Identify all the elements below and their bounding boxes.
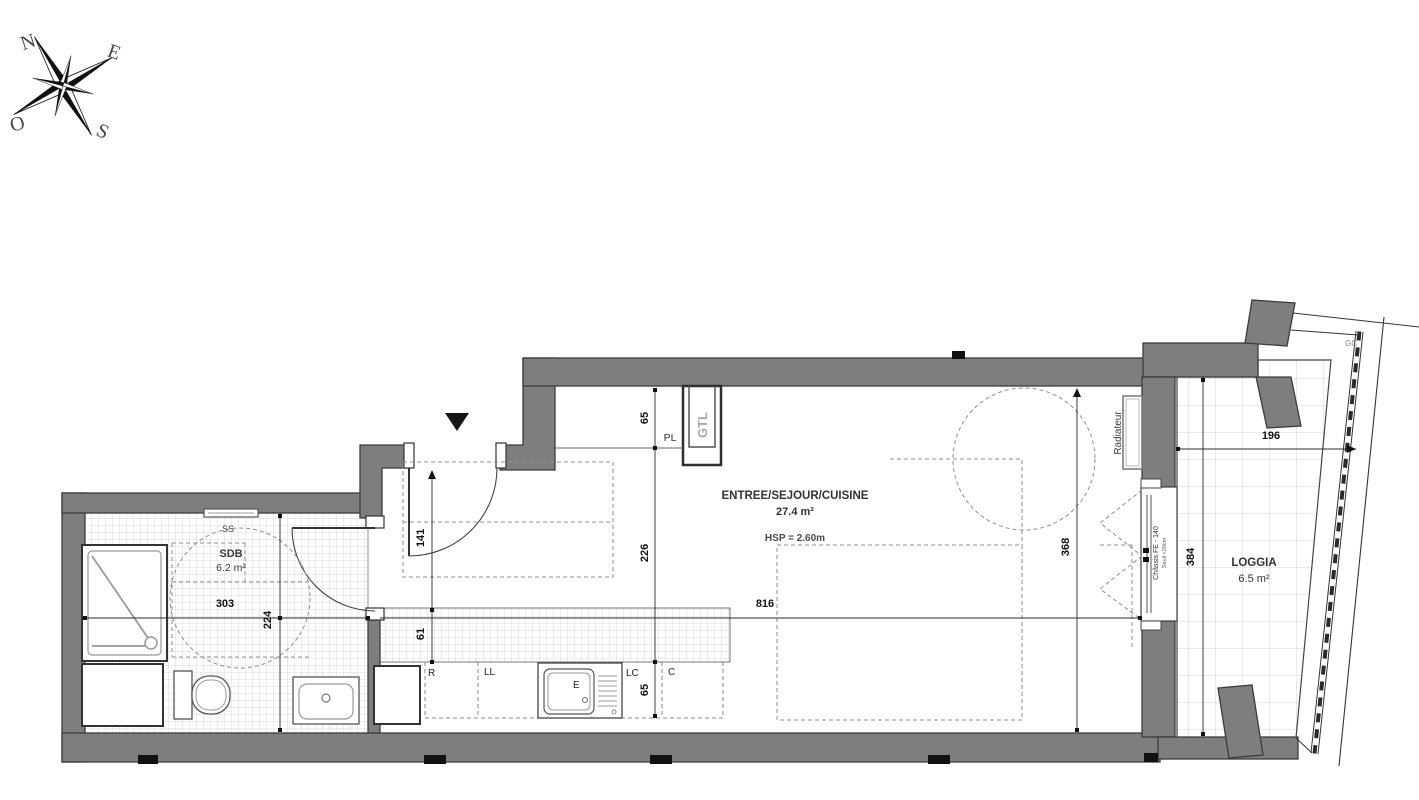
wall-right-lower [1142,621,1175,737]
window-swing-1 [1100,490,1142,556]
arrow-up-368 [1073,388,1081,397]
unit-c-label: C [668,667,675,678]
compass-rose: N E O S [0,8,141,164]
entry-arrow [445,413,469,431]
fridge-label: R [428,668,435,679]
unit-lc-label: LC [626,668,639,679]
main-room-ceiling-height: HSP = 2.60m [765,533,825,544]
dim-65-counter: 65 [639,684,651,696]
window-note-label: Seuil <20cm [1162,537,1168,568]
bathroom-area: 6.2 m² [216,562,246,574]
main-room-area: 27.4 m² [776,506,814,518]
compass-south-label: S [93,119,112,144]
window-clearance [1100,545,1132,648]
dim-65-placard: 65 [639,412,651,424]
main-room-name: ENTREE/SEJOUR/CUISINE [722,490,869,502]
washing-machine-label: LL [484,667,496,678]
dim-141: 141 [415,529,427,547]
radiator-label: Radiateur [1113,411,1124,455]
site-outer-line [1339,317,1384,766]
compass-west-label: O [8,112,28,137]
bathroom-cabinet [82,664,163,726]
wall-right-upper [1142,377,1175,487]
wall-top-main [523,358,1147,386]
compass-east-label: E [105,40,124,65]
dim-61: 61 [415,628,427,640]
site-top-line-2 [1291,330,1358,335]
window-swing-2 [1100,556,1142,620]
dim-816: 816 [756,598,774,610]
site-top-line-1 [1293,313,1419,327]
dim-226: 226 [639,544,651,562]
wall-loggia-top [1143,343,1258,377]
floor-plan-drawing: N E O S [0,0,1419,800]
gtl-label: GTL [695,412,710,438]
placard-label: PL [664,432,677,444]
loggia-name: LOGGIA [1231,557,1276,569]
arrow-right-196 [1347,445,1356,453]
towel-rail [204,509,258,517]
compass-north-label: N [18,30,39,55]
towel-rail-label: SS [222,524,234,534]
dim-303: 303 [216,598,234,610]
shower [82,545,167,661]
dim-196: 196 [1262,430,1280,442]
arrow-up-141 [428,470,436,479]
entry-closet-outline [403,462,613,577]
toilet [174,671,230,719]
sink-label: E [573,680,580,691]
radiator [1123,396,1142,469]
loggia-area: 6.5 m² [1238,573,1270,585]
furniture-outline-2 [890,459,1022,545]
bathroom-name: SDB [219,548,242,560]
loggia-floor-tiles [1177,360,1331,738]
dim-368: 368 [1060,538,1072,556]
dim-224: 224 [262,610,274,629]
washbasin [293,677,359,724]
dim-384: 384 [1185,547,1197,566]
wall-bottom [62,733,1160,762]
gc-label: GC [1345,339,1357,348]
window-label: Châssis FE - 140 [1153,526,1160,580]
furniture-outline-1 [777,545,1022,720]
sink-unit [538,663,622,718]
floor-plan-page: N E O S [0,0,1419,800]
kitchen-tall-cabinet [374,666,420,724]
kitchen-backsplash-tiles [380,608,730,662]
wall-top-arm [1245,300,1295,346]
